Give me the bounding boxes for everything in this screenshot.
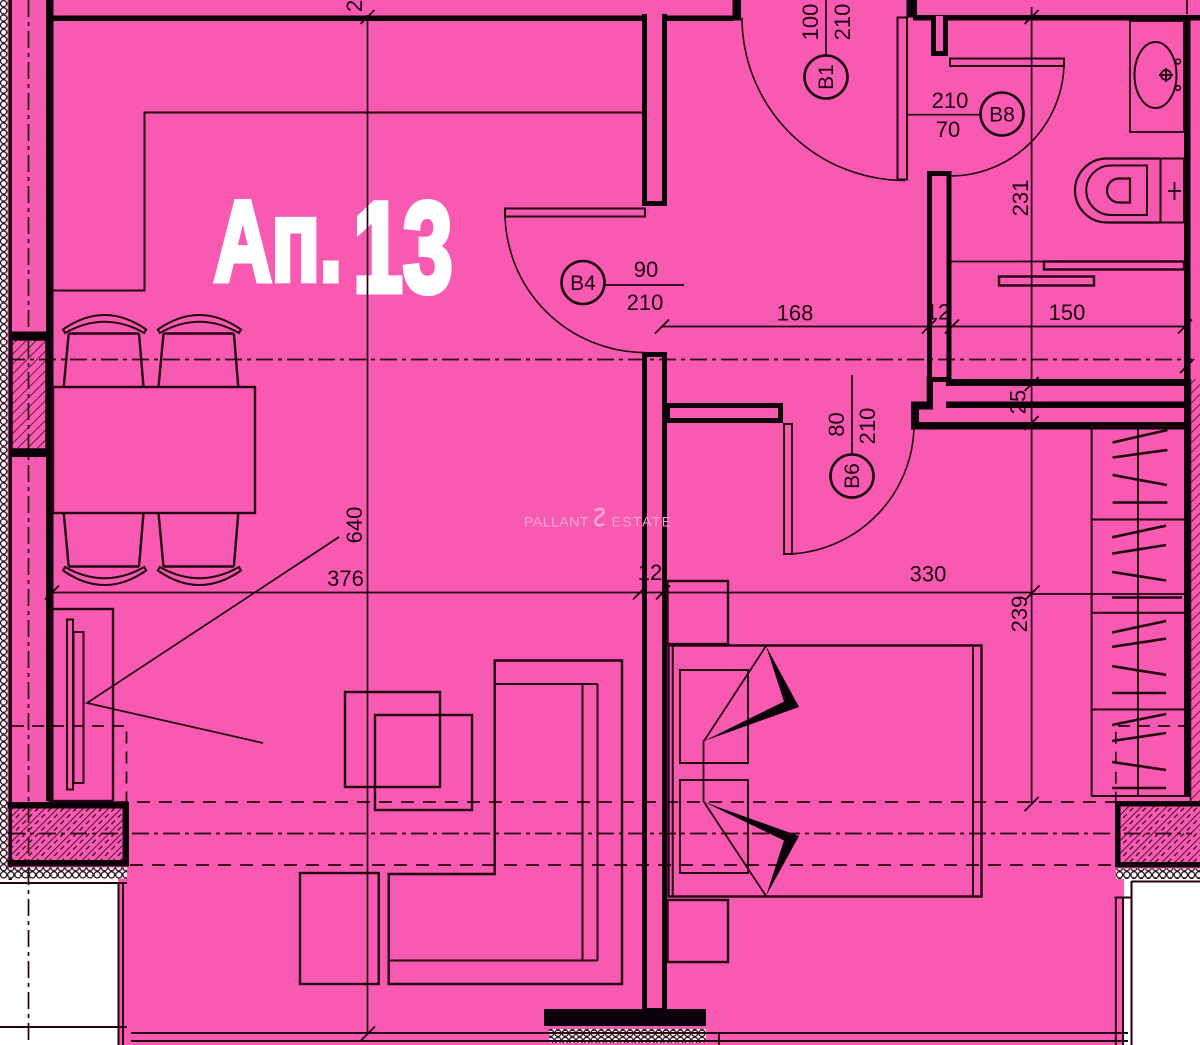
svg-text:В1: В1: [815, 64, 838, 90]
svg-text:В8: В8: [989, 104, 1015, 127]
svg-text:ESTATE: ESTATE: [612, 515, 673, 531]
svg-text:Ап.: Ап.: [214, 177, 342, 304]
svg-text:12: 12: [926, 300, 950, 325]
svg-text:В6: В6: [841, 463, 864, 489]
svg-text:330: 330: [910, 562, 947, 587]
svg-text:239: 239: [1007, 596, 1032, 633]
svg-text:376: 376: [327, 566, 364, 591]
svg-text:90: 90: [634, 257, 658, 282]
svg-text:PALLANT: PALLANT: [524, 515, 589, 531]
svg-text:210: 210: [932, 88, 969, 113]
svg-text:168: 168: [777, 301, 814, 326]
svg-text:12: 12: [638, 560, 662, 585]
svg-text:231: 231: [1008, 180, 1033, 217]
svg-text:210: 210: [830, 4, 855, 41]
svg-text:25: 25: [1006, 390, 1031, 414]
svg-text:210: 210: [342, 0, 367, 12]
svg-text:80: 80: [824, 412, 849, 436]
svg-text:70: 70: [936, 117, 960, 142]
svg-text:210: 210: [627, 290, 664, 315]
svg-text:210: 210: [855, 408, 880, 445]
svg-text:150: 150: [1049, 300, 1086, 325]
svg-text:В4: В4: [570, 272, 596, 295]
svg-text:100: 100: [798, 4, 823, 41]
svg-text:640: 640: [342, 507, 367, 544]
